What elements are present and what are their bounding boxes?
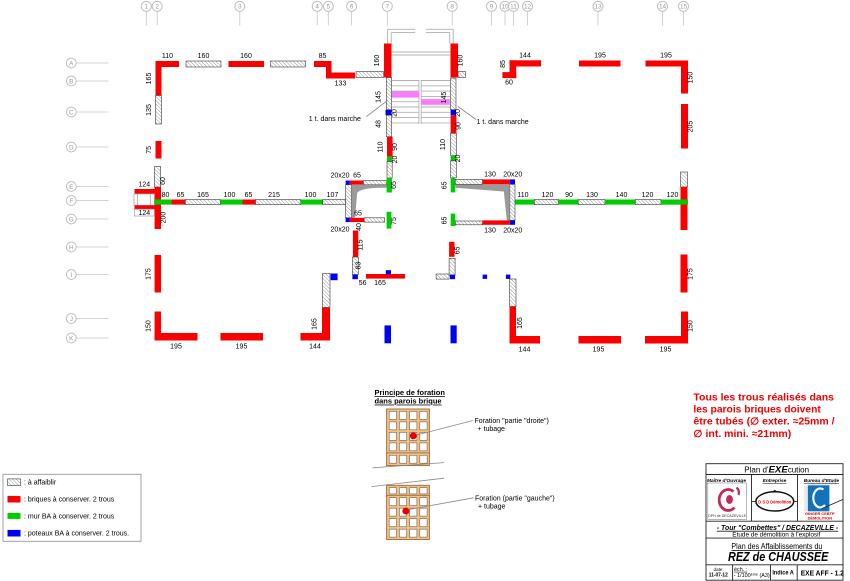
svg-text:1: 1 bbox=[145, 4, 149, 11]
svg-text:140: 140 bbox=[616, 192, 628, 199]
svg-text:145: 145 bbox=[375, 91, 382, 103]
svg-text:115: 115 bbox=[358, 239, 365, 250]
svg-text:Foration "partie "droite"): Foration "partie "droite") bbox=[475, 418, 549, 425]
svg-text:100: 100 bbox=[224, 192, 236, 199]
svg-text:215: 215 bbox=[268, 192, 280, 199]
svg-text:90: 90 bbox=[565, 192, 573, 199]
svg-text:133: 133 bbox=[335, 81, 347, 88]
svg-text:J: J bbox=[70, 316, 73, 323]
svg-text:165: 165 bbox=[311, 318, 318, 330]
svg-text:120: 120 bbox=[542, 192, 554, 199]
svg-text:20x20: 20x20 bbox=[330, 173, 349, 180]
svg-text:40: 40 bbox=[356, 223, 363, 231]
svg-text:120: 120 bbox=[642, 192, 654, 199]
svg-text:1 t. dans marche: 1 t. dans marche bbox=[477, 119, 529, 126]
svg-text:85: 85 bbox=[500, 60, 507, 68]
svg-text:11: 11 bbox=[510, 4, 517, 11]
svg-text:: briques à conserver. 2 trous: : briques à conserver. 2 trous bbox=[24, 497, 115, 504]
svg-text:4: 4 bbox=[315, 4, 319, 11]
svg-text:65: 65 bbox=[245, 192, 253, 199]
svg-text:: poteaux BA à conserver. 2 tr: : poteaux BA à conserver. 2 trous. bbox=[24, 531, 129, 538]
svg-text:195: 195 bbox=[236, 343, 248, 350]
svg-text:195: 195 bbox=[170, 343, 182, 350]
svg-text:3: 3 bbox=[238, 4, 242, 11]
svg-text:A: A bbox=[69, 60, 74, 67]
svg-text:65: 65 bbox=[353, 173, 361, 180]
svg-text:130: 130 bbox=[484, 172, 496, 179]
svg-text:9: 9 bbox=[490, 4, 494, 11]
svg-text:160: 160 bbox=[374, 55, 381, 67]
svg-text:144: 144 bbox=[309, 343, 321, 350]
svg-text:65: 65 bbox=[177, 192, 185, 199]
svg-text:107: 107 bbox=[327, 192, 339, 199]
svg-text:+ tubage: + tubage bbox=[478, 503, 506, 510]
svg-text:165: 165 bbox=[197, 192, 209, 199]
svg-text:160: 160 bbox=[198, 53, 210, 60]
svg-text:H: H bbox=[69, 244, 74, 251]
svg-text:195: 195 bbox=[593, 346, 605, 353]
svg-text:Étude de démolition à l'explos: Étude de démolition à l'explosif bbox=[732, 530, 820, 539]
svg-text:20x20: 20x20 bbox=[330, 227, 349, 234]
svg-text:∅ int. mini. ≈21mm): ∅ int. mini. ≈21mm) bbox=[693, 429, 791, 440]
svg-text:: à affaiblir: : à affaiblir bbox=[24, 480, 57, 487]
svg-text:Indice A: Indice A bbox=[772, 571, 794, 577]
svg-text:dans parois brique: dans parois brique bbox=[375, 397, 442, 406]
svg-text:Plan d'EXEcution: Plan d'EXEcution bbox=[744, 464, 809, 475]
svg-text:DÉMOLITION: DÉMOLITION bbox=[808, 515, 833, 520]
svg-text:- Tour "Combettes" / DECAZEVIL: - Tour "Combettes" / DECAZEVILLE - bbox=[717, 523, 839, 532]
svg-text:OPH de DECAZEVILLE: OPH de DECAZEVILLE bbox=[708, 514, 747, 518]
svg-text:75: 75 bbox=[391, 217, 398, 225]
svg-text:2: 2 bbox=[155, 4, 159, 11]
svg-text:Foration (partie "gauche"): Foration (partie "gauche") bbox=[475, 496, 555, 503]
svg-text:20x20: 20x20 bbox=[503, 227, 522, 234]
svg-text:les parois briques doivent: les parois briques doivent bbox=[693, 405, 821, 416]
svg-text:+ tubage: + tubage bbox=[478, 426, 506, 433]
svg-text:12: 12 bbox=[524, 4, 532, 11]
svg-text:20: 20 bbox=[455, 155, 462, 163]
svg-text:90: 90 bbox=[455, 122, 462, 130]
svg-text:80: 80 bbox=[162, 192, 170, 199]
svg-text:83: 83 bbox=[356, 262, 363, 270]
svg-text:20x20: 20x20 bbox=[503, 172, 522, 179]
svg-text:F: F bbox=[69, 198, 73, 205]
svg-text:110: 110 bbox=[162, 53, 173, 60]
svg-text:175: 175 bbox=[687, 268, 694, 280]
svg-text:195: 195 bbox=[594, 53, 606, 60]
svg-text:Tous les trous réalisés dans: Tous les trous réalisés dans bbox=[693, 392, 834, 403]
svg-text:E: E bbox=[69, 184, 73, 191]
svg-text:205: 205 bbox=[688, 121, 695, 133]
svg-text:8: 8 bbox=[450, 4, 454, 11]
svg-text:G: G bbox=[69, 216, 74, 223]
svg-text:60: 60 bbox=[505, 80, 513, 87]
svg-text:éch. :: éch. : bbox=[734, 567, 747, 573]
svg-text:200: 200 bbox=[160, 212, 167, 224]
svg-text:75: 75 bbox=[146, 146, 153, 154]
svg-text:124: 124 bbox=[138, 181, 150, 188]
svg-text:175: 175 bbox=[146, 268, 153, 280]
svg-text:130: 130 bbox=[484, 227, 496, 234]
svg-text:Entreprise: Entreprise bbox=[763, 478, 787, 484]
svg-text:K: K bbox=[69, 335, 74, 342]
svg-text:7: 7 bbox=[386, 4, 390, 11]
svg-text:B: B bbox=[69, 78, 73, 85]
svg-text:20: 20 bbox=[455, 109, 462, 117]
svg-text:110: 110 bbox=[440, 139, 447, 150]
svg-text:110: 110 bbox=[378, 141, 385, 152]
svg-text:160: 160 bbox=[240, 53, 252, 60]
svg-text:150: 150 bbox=[687, 320, 694, 332]
svg-text:15: 15 bbox=[680, 4, 688, 11]
svg-text:165: 165 bbox=[374, 280, 386, 287]
svg-text:165: 165 bbox=[517, 317, 524, 329]
svg-text:56: 56 bbox=[359, 280, 367, 287]
svg-text:135: 135 bbox=[146, 104, 153, 116]
svg-text:10: 10 bbox=[501, 4, 509, 11]
svg-text:100: 100 bbox=[305, 192, 317, 199]
svg-text:120: 120 bbox=[667, 192, 679, 199]
svg-text:6: 6 bbox=[350, 4, 354, 11]
svg-text:être tubés (∅ exter. ≈25mm /: être tubés (∅ exter. ≈25mm / bbox=[693, 417, 834, 428]
svg-text:195: 195 bbox=[660, 346, 672, 353]
svg-text:20: 20 bbox=[392, 109, 399, 117]
svg-text:195: 195 bbox=[660, 53, 672, 60]
svg-text:D: D bbox=[69, 144, 74, 151]
svg-text:I: I bbox=[70, 272, 72, 279]
svg-text:: mur BA à conserver. 2 trous: : mur BA à conserver. 2 trous bbox=[24, 514, 115, 521]
svg-text:145: 145 bbox=[441, 92, 448, 104]
svg-text:65: 65 bbox=[391, 181, 398, 189]
svg-text:150: 150 bbox=[688, 72, 695, 84]
svg-text:65: 65 bbox=[442, 181, 449, 189]
svg-text:20: 20 bbox=[392, 156, 399, 164]
svg-text:160: 160 bbox=[458, 55, 465, 67]
svg-text:REZ de CHAUSSEE: REZ de CHAUSSEE bbox=[728, 549, 829, 564]
svg-text:INGENIERIE EUROPE: INGENIERIE EUROPE bbox=[808, 482, 837, 486]
svg-text:EXE AFF - 1.2: EXE AFF - 1.2 bbox=[801, 570, 844, 577]
svg-text:130: 130 bbox=[586, 192, 598, 199]
svg-text:144: 144 bbox=[519, 346, 531, 353]
svg-text:144: 144 bbox=[519, 52, 531, 59]
svg-text:14: 14 bbox=[659, 4, 667, 11]
svg-text:65: 65 bbox=[454, 247, 461, 255]
svg-text:124: 124 bbox=[138, 210, 150, 217]
svg-text:60: 60 bbox=[160, 177, 167, 185]
svg-text:85: 85 bbox=[319, 53, 327, 60]
svg-text:C: C bbox=[69, 109, 74, 116]
svg-text:date: date bbox=[714, 567, 723, 572]
svg-text:165: 165 bbox=[146, 73, 153, 85]
svg-text:48: 48 bbox=[376, 120, 383, 128]
svg-text:11-07-12: 11-07-12 bbox=[709, 573, 728, 579]
svg-text:65: 65 bbox=[354, 210, 362, 217]
svg-text:65: 65 bbox=[442, 217, 449, 225]
svg-text:1 t. dans marche: 1 t. dans marche bbox=[309, 116, 361, 123]
svg-text:13: 13 bbox=[594, 4, 602, 11]
svg-text:D S D Démolition: D S D Démolition bbox=[758, 499, 791, 504]
svg-text:5: 5 bbox=[327, 4, 331, 11]
svg-text:90: 90 bbox=[392, 143, 399, 151]
svg-text:110: 110 bbox=[517, 192, 528, 199]
svg-text:150: 150 bbox=[146, 320, 153, 332]
